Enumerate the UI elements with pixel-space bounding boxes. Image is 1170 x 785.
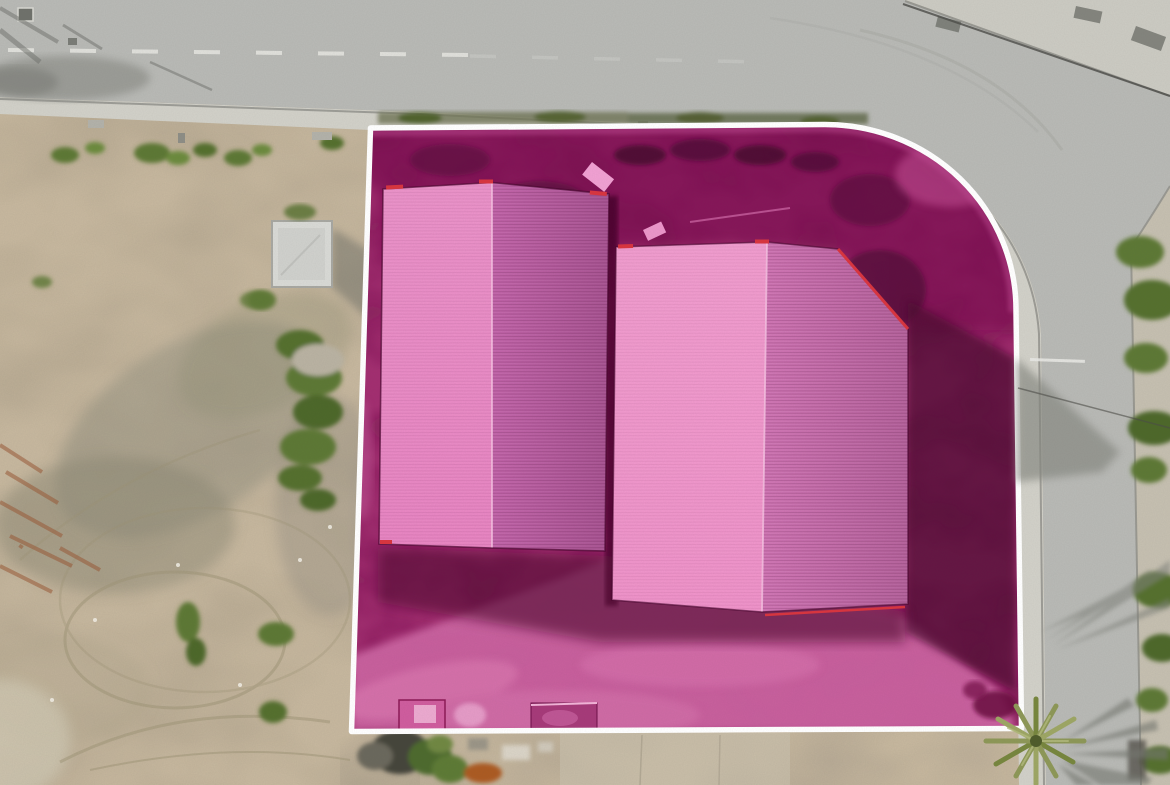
aerial-photo-canvas [0,0,1170,785]
aerial-screenshot [0,0,1170,785]
photo-grain [0,0,1170,785]
